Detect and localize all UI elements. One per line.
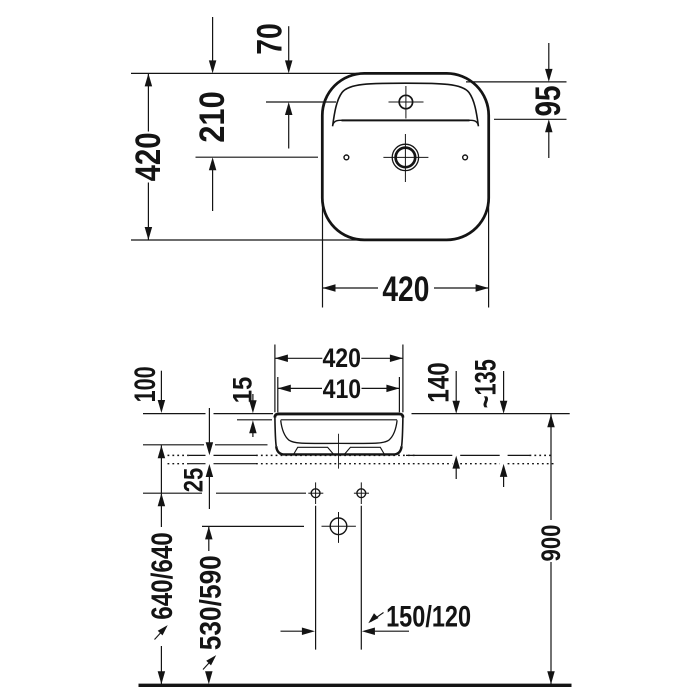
svg-text:410: 410 [323, 374, 362, 404]
svg-text:210: 210 [193, 91, 232, 143]
svg-text:25: 25 [178, 468, 208, 493]
svg-text:15: 15 [228, 377, 258, 404]
svg-text:420: 420 [129, 132, 168, 181]
svg-text:140: 140 [423, 362, 456, 403]
svg-text:95: 95 [529, 86, 568, 117]
svg-text:150/120: 150/120 [386, 601, 471, 634]
svg-text:100: 100 [129, 366, 162, 402]
svg-text:420: 420 [322, 343, 361, 373]
svg-text:420: 420 [382, 270, 429, 309]
svg-text:640/640: 640/640 [146, 532, 179, 620]
svg-text:530/590: 530/590 [194, 555, 227, 650]
svg-text:900: 900 [536, 525, 566, 562]
svg-text:~135: ~135 [469, 359, 502, 408]
svg-text:70: 70 [251, 23, 290, 55]
